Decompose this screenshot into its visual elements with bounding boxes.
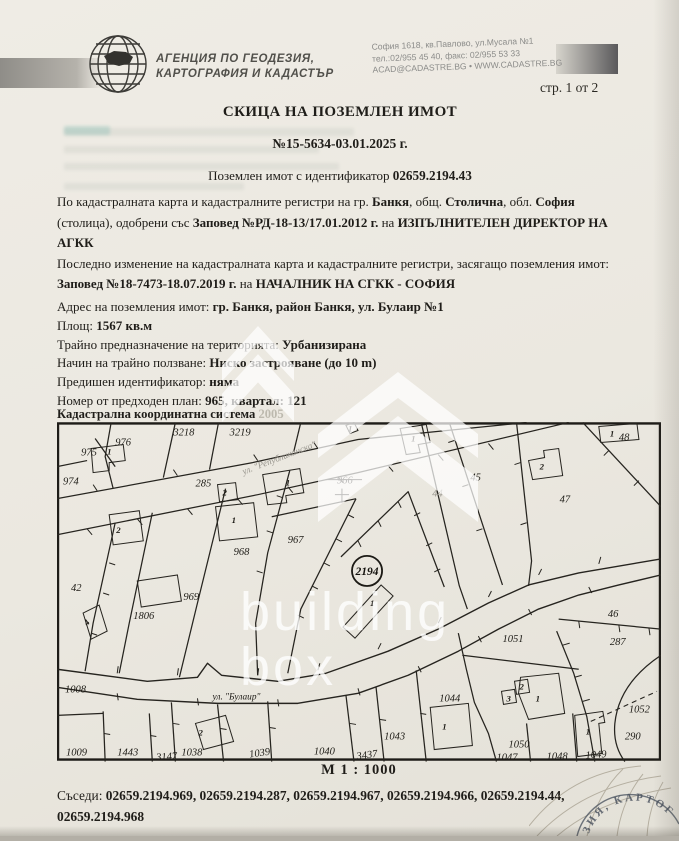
coord-system-label: Кадастрална координатна система: [57, 407, 258, 421]
parcel-label: 1048: [547, 752, 569, 762]
field-value: Урбанизирана: [282, 337, 366, 352]
parcel-label: 966: [337, 476, 354, 487]
building-label: 1: [232, 515, 236, 525]
text-segment: на: [378, 215, 397, 230]
document-number: №15-5634-03.01.2025 г.: [57, 136, 623, 152]
agency-name-line2: КАРТОГРАФИЯ И КАДАСТЪР: [156, 67, 334, 82]
parcel-label: 1052: [629, 704, 651, 715]
building-label: 1: [348, 423, 352, 433]
field-row-previous-identifier: Предишен идентификатор: няма: [57, 373, 625, 392]
building-label: 1: [107, 447, 111, 457]
subject-parcel-number: 2194: [355, 566, 379, 578]
map-border: [58, 423, 660, 759]
field-value: 1567 кв.м: [96, 318, 152, 333]
parcel-label: 1049: [585, 749, 607, 761]
agency-name-line1: АГЕНЦИЯ ПО ГЕОДЕЗИЯ,: [156, 52, 334, 67]
neighbors-label: Съседи:: [57, 788, 106, 803]
building-label: 1: [411, 434, 415, 444]
parcel-label: 1047: [496, 753, 518, 762]
field-row-address: Адрес на поземления имот: гр. Банкя, рай…: [57, 298, 625, 317]
page-indicator: стр. 1 от 2: [540, 80, 598, 96]
field-value: Ниско застрояване (до 10 m): [209, 355, 376, 370]
parcel-label: 1044: [439, 693, 461, 704]
street-label-bulair: ул. "Булаир": [212, 692, 261, 702]
parcel-label: 3437: [355, 749, 379, 762]
parcel-label: 1038: [181, 748, 203, 759]
page-edge-shading: [653, 0, 679, 836]
text-segment: Заповед №РД-18-13/17.01.2012 г.: [193, 215, 379, 230]
bleed-through-mark: [64, 183, 244, 190]
parcel-label: 45: [470, 473, 481, 484]
cadastral-map-section: 3218321997597697428596644454748967968969…: [57, 422, 661, 762]
property-details: По кадастралната карта и кадастралните р…: [57, 192, 625, 411]
field-label: Предишен идентификатор:: [57, 374, 209, 389]
building-label: 1: [442, 721, 446, 731]
building-label: 4: [81, 617, 92, 628]
paragraph-cadastral-register: По кадастралната карта и кадастралните р…: [57, 192, 625, 254]
parcel-label: 1008: [65, 684, 87, 695]
building-label: 2: [197, 727, 203, 737]
parcel-label: 44: [432, 489, 443, 500]
parcel-label: 974: [63, 477, 80, 488]
parcel-label: 1050: [508, 740, 530, 751]
text-segment: на: [236, 276, 255, 291]
text-segment: По кадастралната карта и кадастралните р…: [57, 194, 372, 209]
field-label: Номер от предходен план:: [57, 393, 205, 408]
neighbors-values: 02659.2194.969, 02659.2194.287, 02659.21…: [106, 788, 565, 803]
building-label: 1: [610, 428, 614, 438]
agency-name: АГЕНЦИЯ ПО ГЕОДЕЗИЯ, КАРТОГРАФИЯ И КАДАС…: [156, 52, 334, 82]
paragraph-last-amendment: Последно изменение на кадастралната карт…: [57, 254, 625, 295]
parcel-label: 3147: [155, 751, 178, 762]
parcel-label: 42: [71, 583, 82, 594]
text-segment: НАЧАЛНИК НА СГКК - СОФИЯ: [256, 276, 455, 291]
parcel-label: 969: [183, 592, 200, 603]
parcel-label: 968: [234, 547, 251, 558]
field-row-area: Площ: 1567 кв.м: [57, 317, 625, 336]
field-label: Начин на трайно ползване:: [57, 355, 209, 370]
parcel-label: 287: [610, 637, 627, 648]
building-label: 1: [536, 693, 540, 703]
document-page: АГЕНЦИЯ ПО ГЕОДЕЗИЯ, КАРТОГРАФИЯ И КАДАС…: [0, 0, 679, 836]
survey-tick-marks: [87, 440, 650, 736]
field-row-permanent-use: Начин на трайно ползване: Ниско застрояв…: [57, 354, 625, 373]
agency-contact-block: София 1618, кв.Павлово, ул.Мусала №1 тел…: [371, 34, 567, 76]
page-edge-shading: [0, 826, 679, 836]
subject-parcel-marker: 2194: [352, 556, 382, 586]
parcel-label: 1443: [117, 748, 138, 759]
building-label: 1: [370, 598, 374, 608]
text-segment: (столица), одобрени със: [57, 215, 193, 230]
field-value: гр. Банкя, район Банкя, ул. Булаир №1: [213, 299, 444, 314]
coord-system-value: 2005: [258, 407, 283, 421]
building-label: 2: [222, 488, 228, 498]
building-label: 2: [115, 525, 121, 535]
building-label: 1: [286, 478, 290, 488]
cadastral-map: 3218321997597697428596644454748967968969…: [57, 422, 661, 762]
building-outlines: [83, 422, 639, 756]
parcel-id-value: 02659.2194.43: [393, 168, 472, 183]
parcel-label: 975: [81, 448, 97, 459]
text-segment: , обл.: [503, 194, 535, 209]
agency-globe-logo: [86, 32, 150, 96]
building-label: 1: [586, 726, 590, 736]
document-title: СКИЦА НА ПОЗЕМЛЕН ИМОТ: [57, 104, 623, 121]
text-segment: , общ.: [409, 194, 445, 209]
parcel-label: 3218: [172, 427, 195, 438]
parcel-label: 48: [619, 432, 630, 443]
parcel-label: 1009: [66, 748, 88, 759]
text-segment: Заповед №18-7473-18.07.2019 г.: [57, 276, 236, 291]
parcel-label: 1051: [502, 634, 523, 645]
parcel-label: 967: [288, 535, 305, 546]
building-label: 2: [519, 681, 525, 691]
parcel-label: 1806: [133, 611, 155, 622]
field-rows: Адрес на поземления имот: гр. Банкя, рай…: [57, 298, 625, 411]
building-label: 3: [505, 693, 511, 703]
parcel-identifier-line: Поземлен имот с идентификатор 02659.2194…: [57, 168, 623, 184]
parcel-id-label: Поземлен имот с идентификатор: [208, 168, 393, 183]
field-label: Площ:: [57, 318, 96, 333]
text-segment: София: [535, 194, 574, 209]
parcel-label: 1040: [314, 747, 336, 758]
parcel-label: 290: [625, 731, 642, 742]
parcel-label: 46: [608, 609, 619, 620]
parcel-label: 47: [560, 495, 571, 506]
parcel-label: 285: [195, 479, 211, 490]
parcel-label: 976: [115, 438, 132, 449]
field-label: Адрес на поземления имот:: [57, 299, 213, 314]
parcel-label: 1043: [384, 731, 405, 742]
field-row-territory-purpose: Трайно предназначение на територията: Ур…: [57, 336, 625, 355]
text-segment: Столична: [445, 194, 503, 209]
building-label: 2: [539, 462, 545, 472]
field-label: Трайно предназначение на територията:: [57, 337, 282, 352]
parcel-boundaries: [57, 422, 661, 761]
text-segment: Банкя: [372, 194, 409, 209]
field-value: 965, квартал: 121: [205, 393, 307, 408]
coordinate-system-line: Кадастрална координатна система 2005: [57, 407, 284, 422]
title-block: СКИЦА НА ПОЗЕМЛЕН ИМОТ №15-5634-03.01.20…: [57, 104, 623, 184]
neighbors-values: 02659.2194.968: [57, 809, 144, 824]
field-value: няма: [209, 374, 239, 389]
text-segment: Последно изменение на кадастралната карт…: [57, 256, 609, 271]
parcel-label: 3219: [229, 427, 252, 438]
